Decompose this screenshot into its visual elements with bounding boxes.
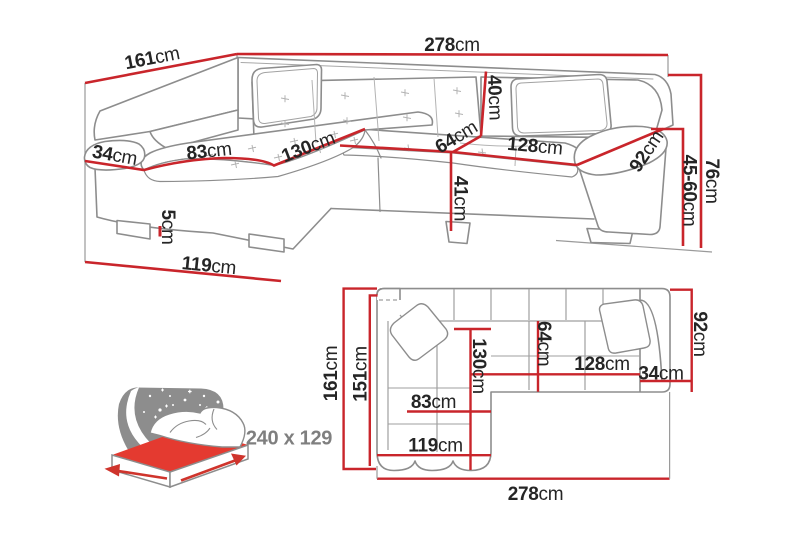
svg-text:83cm: 83cm	[411, 392, 456, 413]
svg-text:76cm: 76cm	[701, 158, 722, 203]
svg-text:40cm: 40cm	[483, 75, 506, 121]
svg-text:34cm: 34cm	[638, 364, 683, 385]
svg-text:45-60cm: 45-60cm	[678, 155, 699, 227]
svg-text:119cm: 119cm	[181, 253, 237, 279]
svg-text:128cm: 128cm	[574, 354, 630, 375]
svg-text:41cm: 41cm	[449, 176, 470, 221]
svg-text:151cm: 151cm	[351, 346, 372, 402]
svg-text:5cm: 5cm	[157, 209, 178, 244]
svg-text:64cm: 64cm	[533, 321, 554, 366]
svg-text:130cm: 130cm	[468, 338, 489, 394]
svg-text:278cm: 278cm	[424, 35, 480, 56]
svg-text:278cm: 278cm	[508, 484, 564, 505]
svg-text:240 x 129: 240 x 129	[246, 428, 332, 450]
svg-text:161cm: 161cm	[321, 346, 342, 402]
svg-text:92cm: 92cm	[689, 311, 710, 356]
svg-text:119cm: 119cm	[408, 436, 463, 457]
